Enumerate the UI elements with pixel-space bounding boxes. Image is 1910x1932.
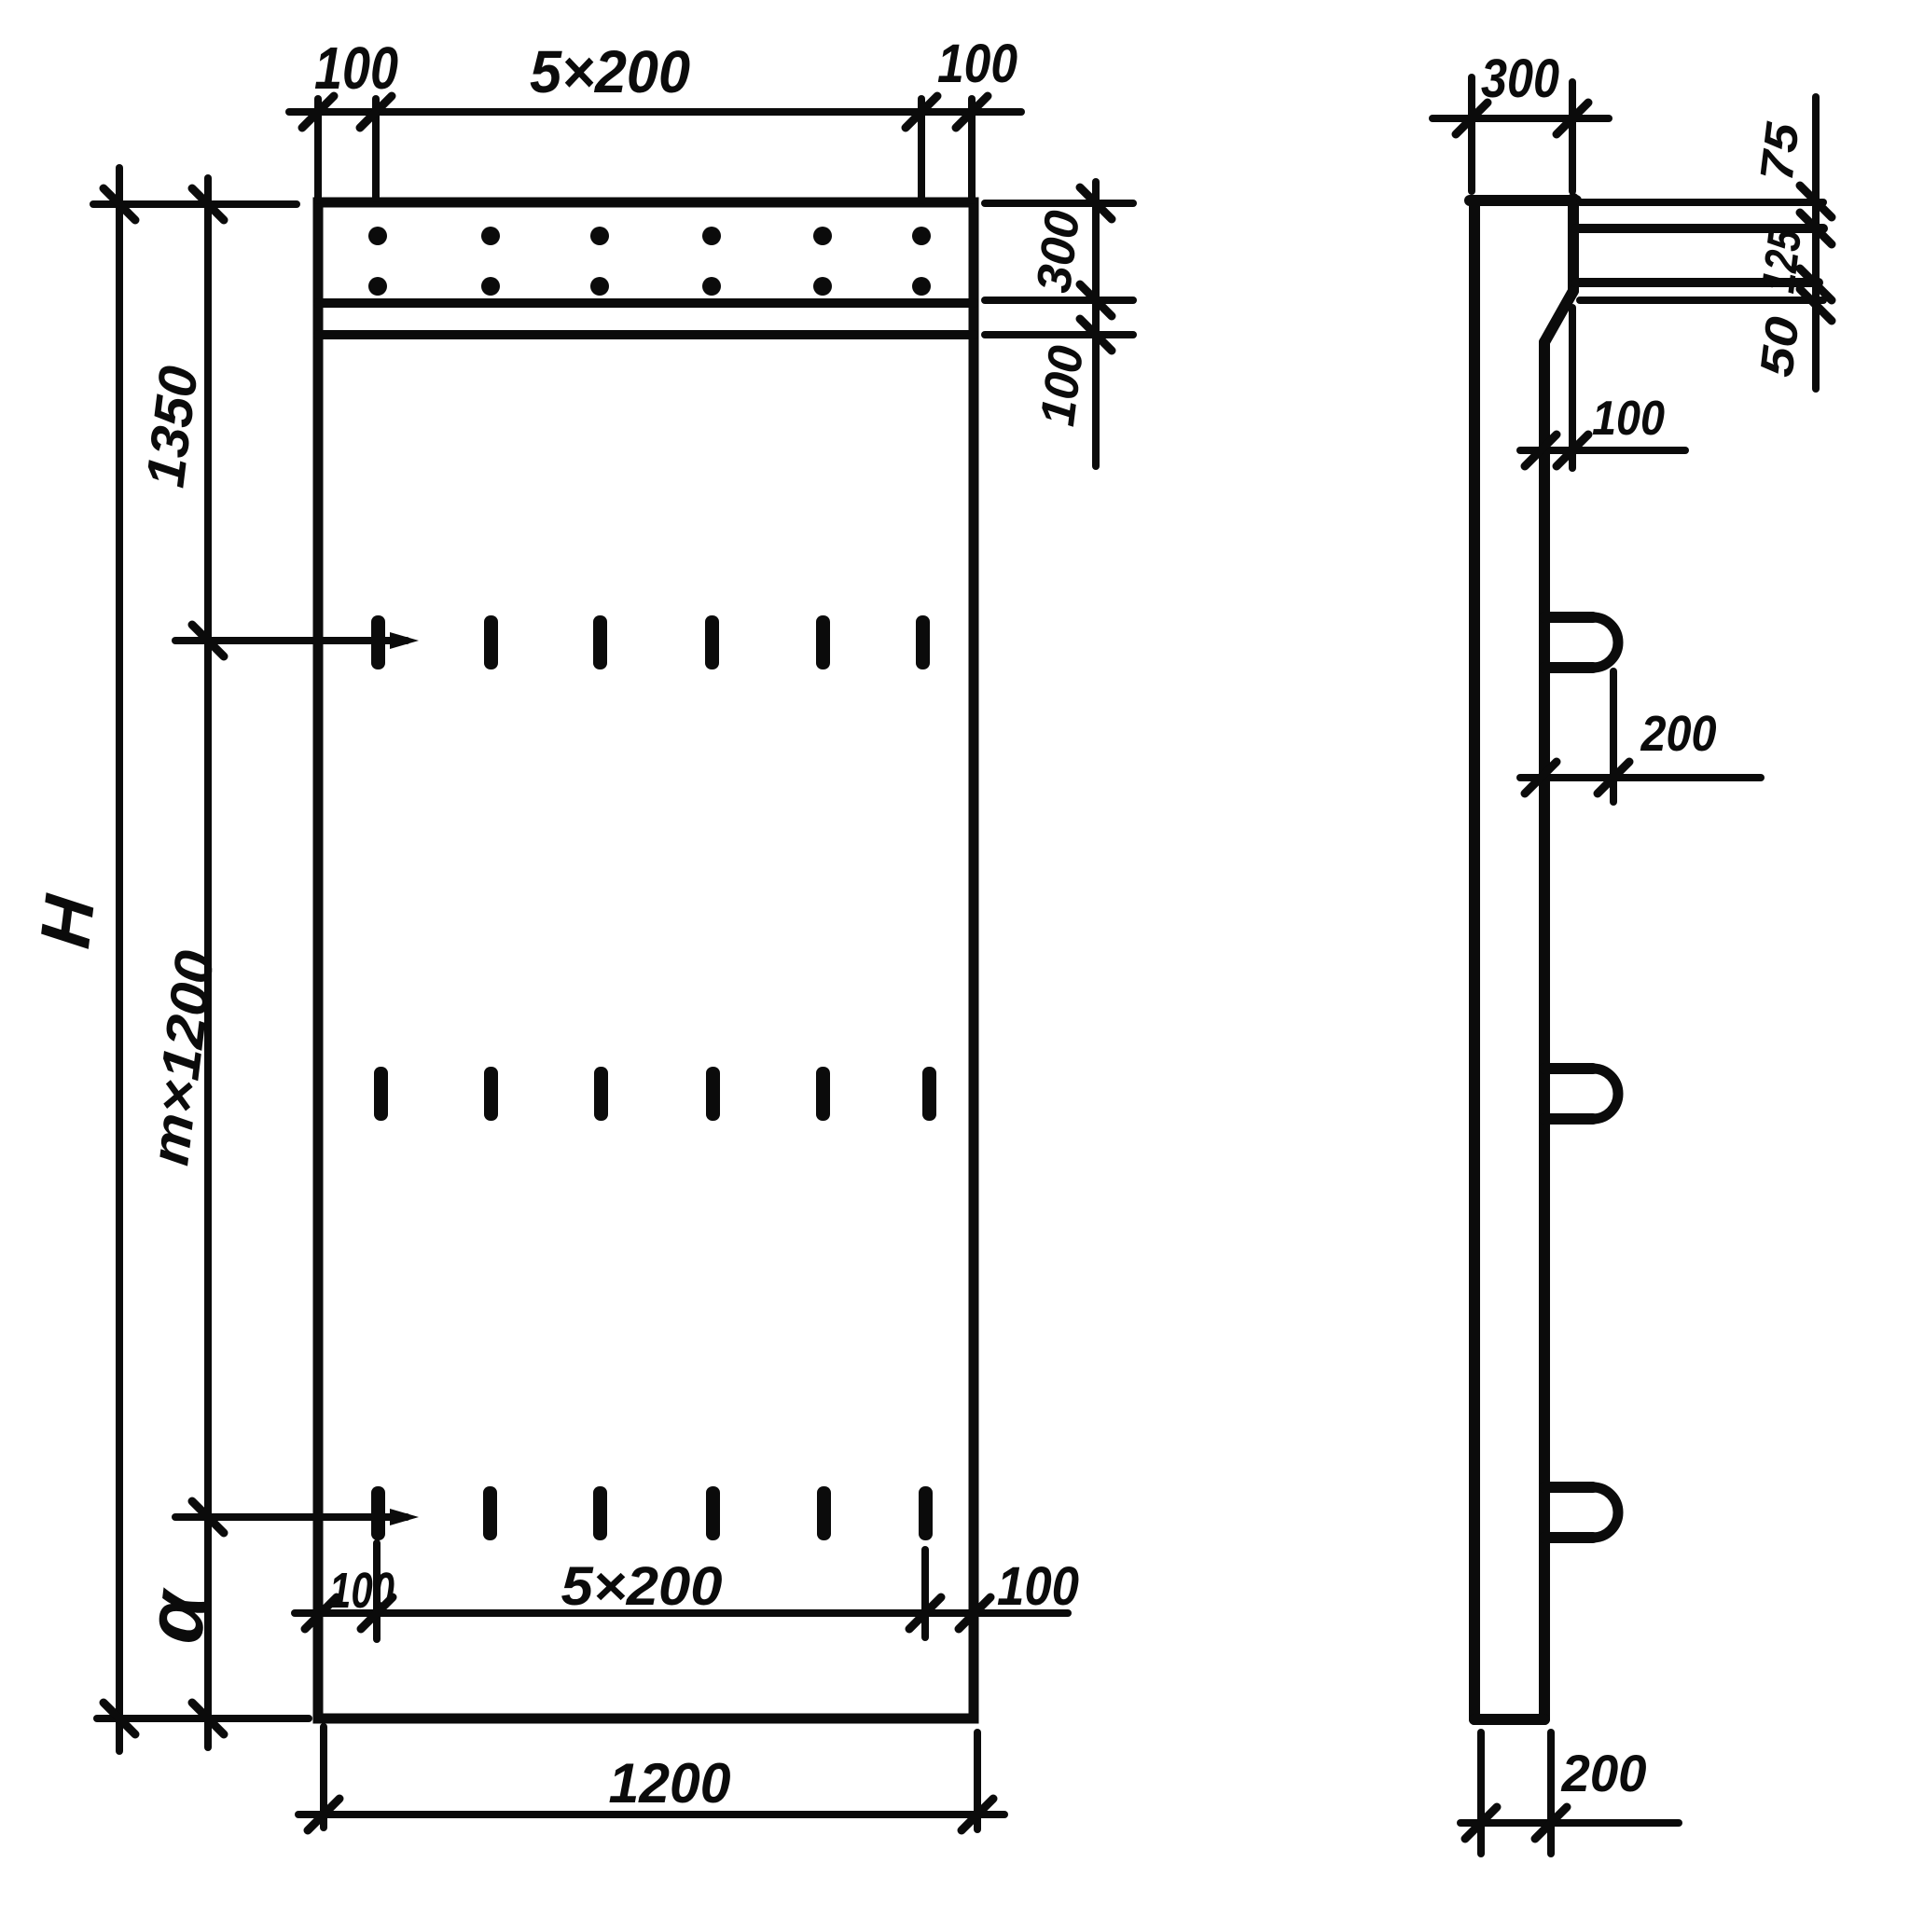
svg-text:200: 200	[1640, 706, 1717, 762]
svg-text:100: 100	[997, 1556, 1079, 1617]
svg-text:300: 300	[1027, 208, 1090, 296]
svg-text:100: 100	[329, 1563, 394, 1619]
svg-text:50: 50	[1750, 314, 1808, 380]
svg-text:5×200: 5×200	[530, 38, 690, 105]
svg-text:200: 200	[1561, 1744, 1647, 1802]
svg-text:H: H	[25, 890, 110, 952]
svg-text:m×1200: m×1200	[139, 947, 226, 1168]
svg-text:1200: 1200	[609, 1752, 731, 1815]
svg-text:100: 100	[1031, 343, 1094, 430]
svg-text:100: 100	[314, 34, 398, 102]
svg-text:300: 300	[1481, 48, 1559, 109]
svg-text:5×200: 5×200	[561, 1556, 723, 1617]
svg-text:125: 125	[1751, 226, 1811, 296]
svg-text:100: 100	[1592, 392, 1665, 446]
svg-text:1350: 1350	[134, 363, 209, 490]
svg-text:100: 100	[937, 34, 1017, 94]
svg-text:75: 75	[1751, 118, 1809, 184]
